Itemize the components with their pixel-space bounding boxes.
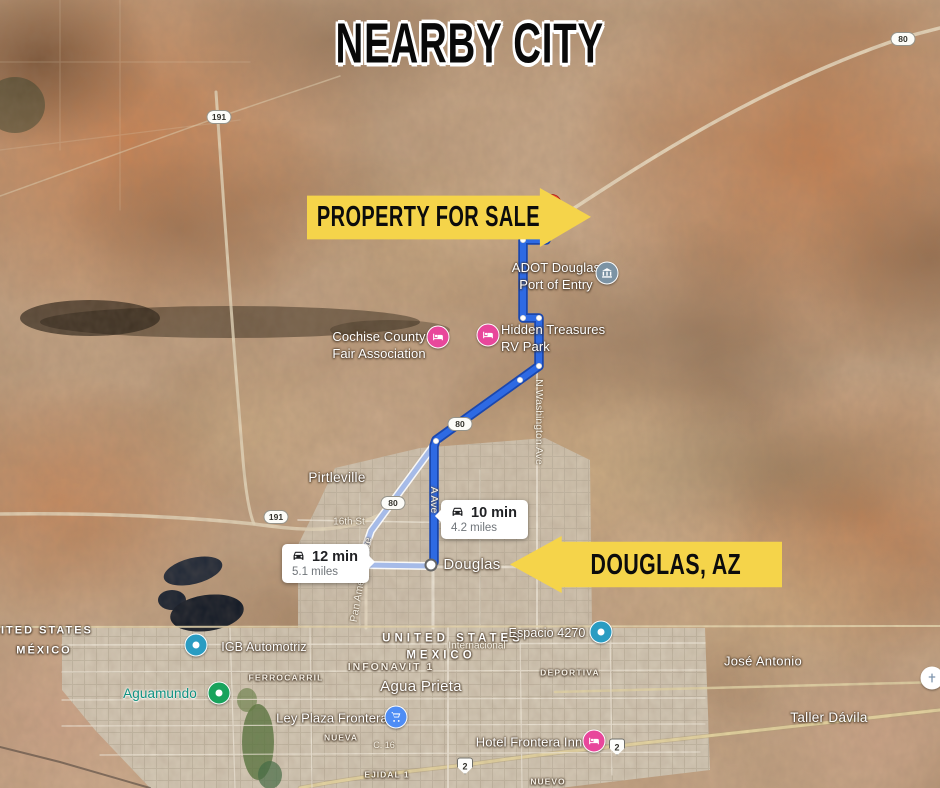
- city-callout-label: DOUGLAS, AZ: [591, 547, 742, 582]
- terrain-grain: [0, 0, 940, 788]
- satellite-map-canvas[interactable]: [0, 0, 940, 788]
- route-time-badge-alternate[interactable]: 12 min 5.1 miles: [282, 544, 369, 583]
- car-icon: [449, 504, 466, 521]
- primary-distance: 4.2 miles: [451, 522, 517, 534]
- route-time-badge-primary[interactable]: 10 min 4.2 miles: [441, 500, 528, 539]
- car-icon: [290, 548, 307, 565]
- property-for-sale-callout-arrow: PROPERTY FOR SALE: [307, 188, 591, 247]
- alternate-duration: 12 min: [312, 549, 358, 565]
- primary-duration: 10 min: [471, 505, 517, 521]
- map-screenshot: ADOT Douglas Port of EntryCochise County…: [0, 0, 940, 788]
- route-origin-dot: [426, 560, 437, 571]
- alternate-distance: 5.1 miles: [292, 566, 358, 578]
- property-callout-label: PROPERTY FOR SALE: [316, 201, 539, 234]
- douglas-az-callout-arrow: DOUGLAS, AZ: [510, 536, 782, 593]
